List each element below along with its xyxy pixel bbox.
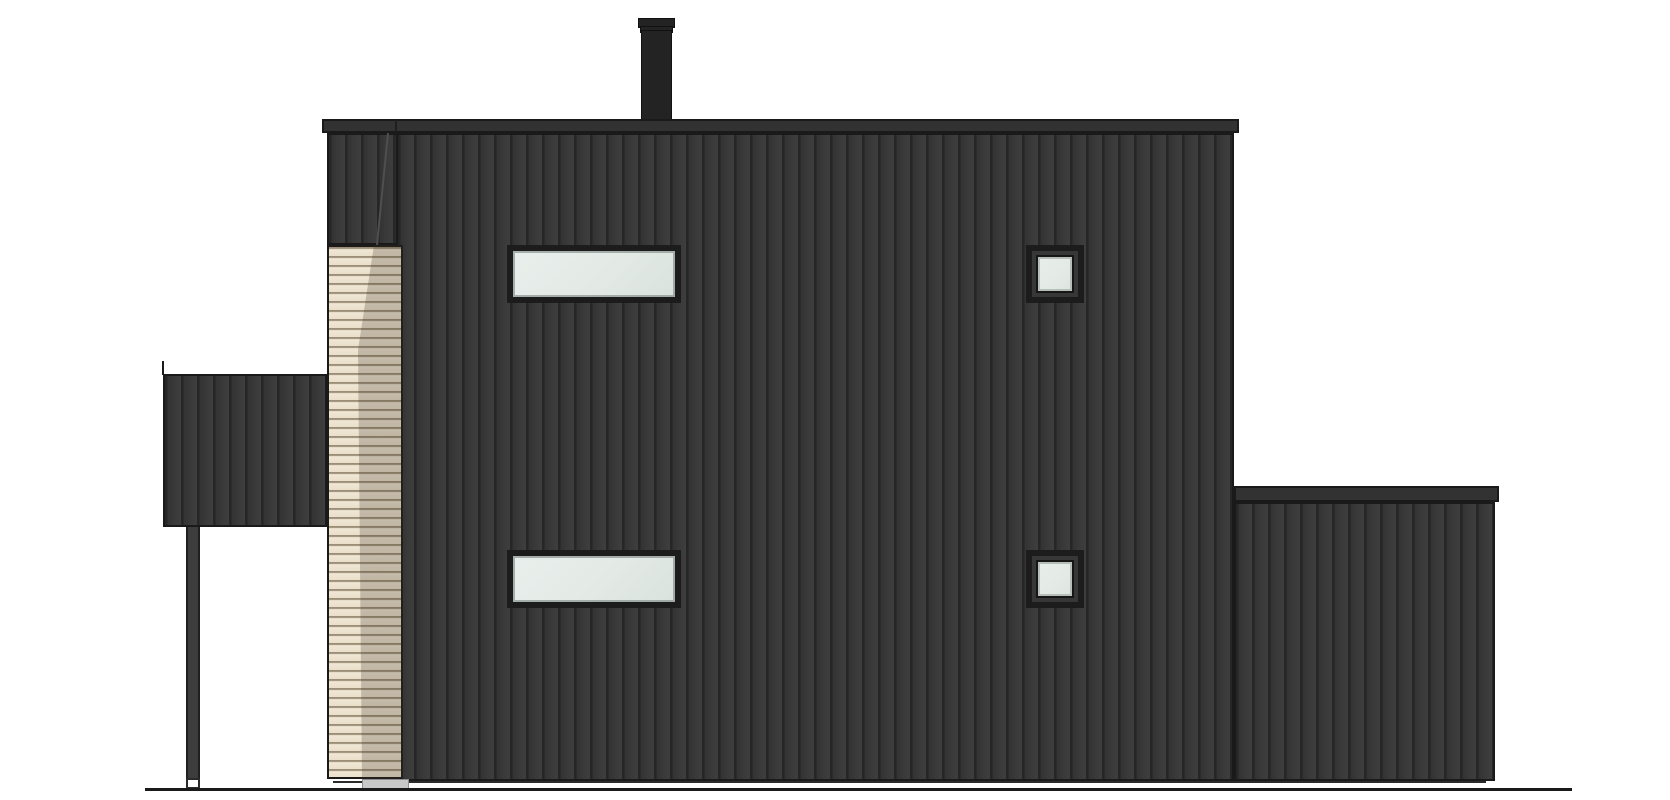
main-wall (396, 133, 1234, 781)
left-canopy (163, 374, 327, 527)
ribbon-window-upper (507, 245, 681, 303)
fascia-seam (395, 120, 397, 132)
canopy-edge-tick (162, 361, 164, 375)
right-extension-wall (1234, 502, 1495, 781)
square-window-lower (1026, 550, 1084, 608)
main-roof-fascia (322, 119, 1239, 133)
chimney-flue (641, 30, 672, 124)
ground-line (145, 788, 1572, 791)
canopy-post (186, 527, 200, 778)
elevation-drawing-canvas (0, 0, 1670, 800)
square-window-upper (1026, 245, 1084, 303)
right-extension-fascia (1234, 486, 1499, 502)
ribbon-window-lower (507, 550, 681, 608)
column-shadow-edge (327, 133, 396, 245)
